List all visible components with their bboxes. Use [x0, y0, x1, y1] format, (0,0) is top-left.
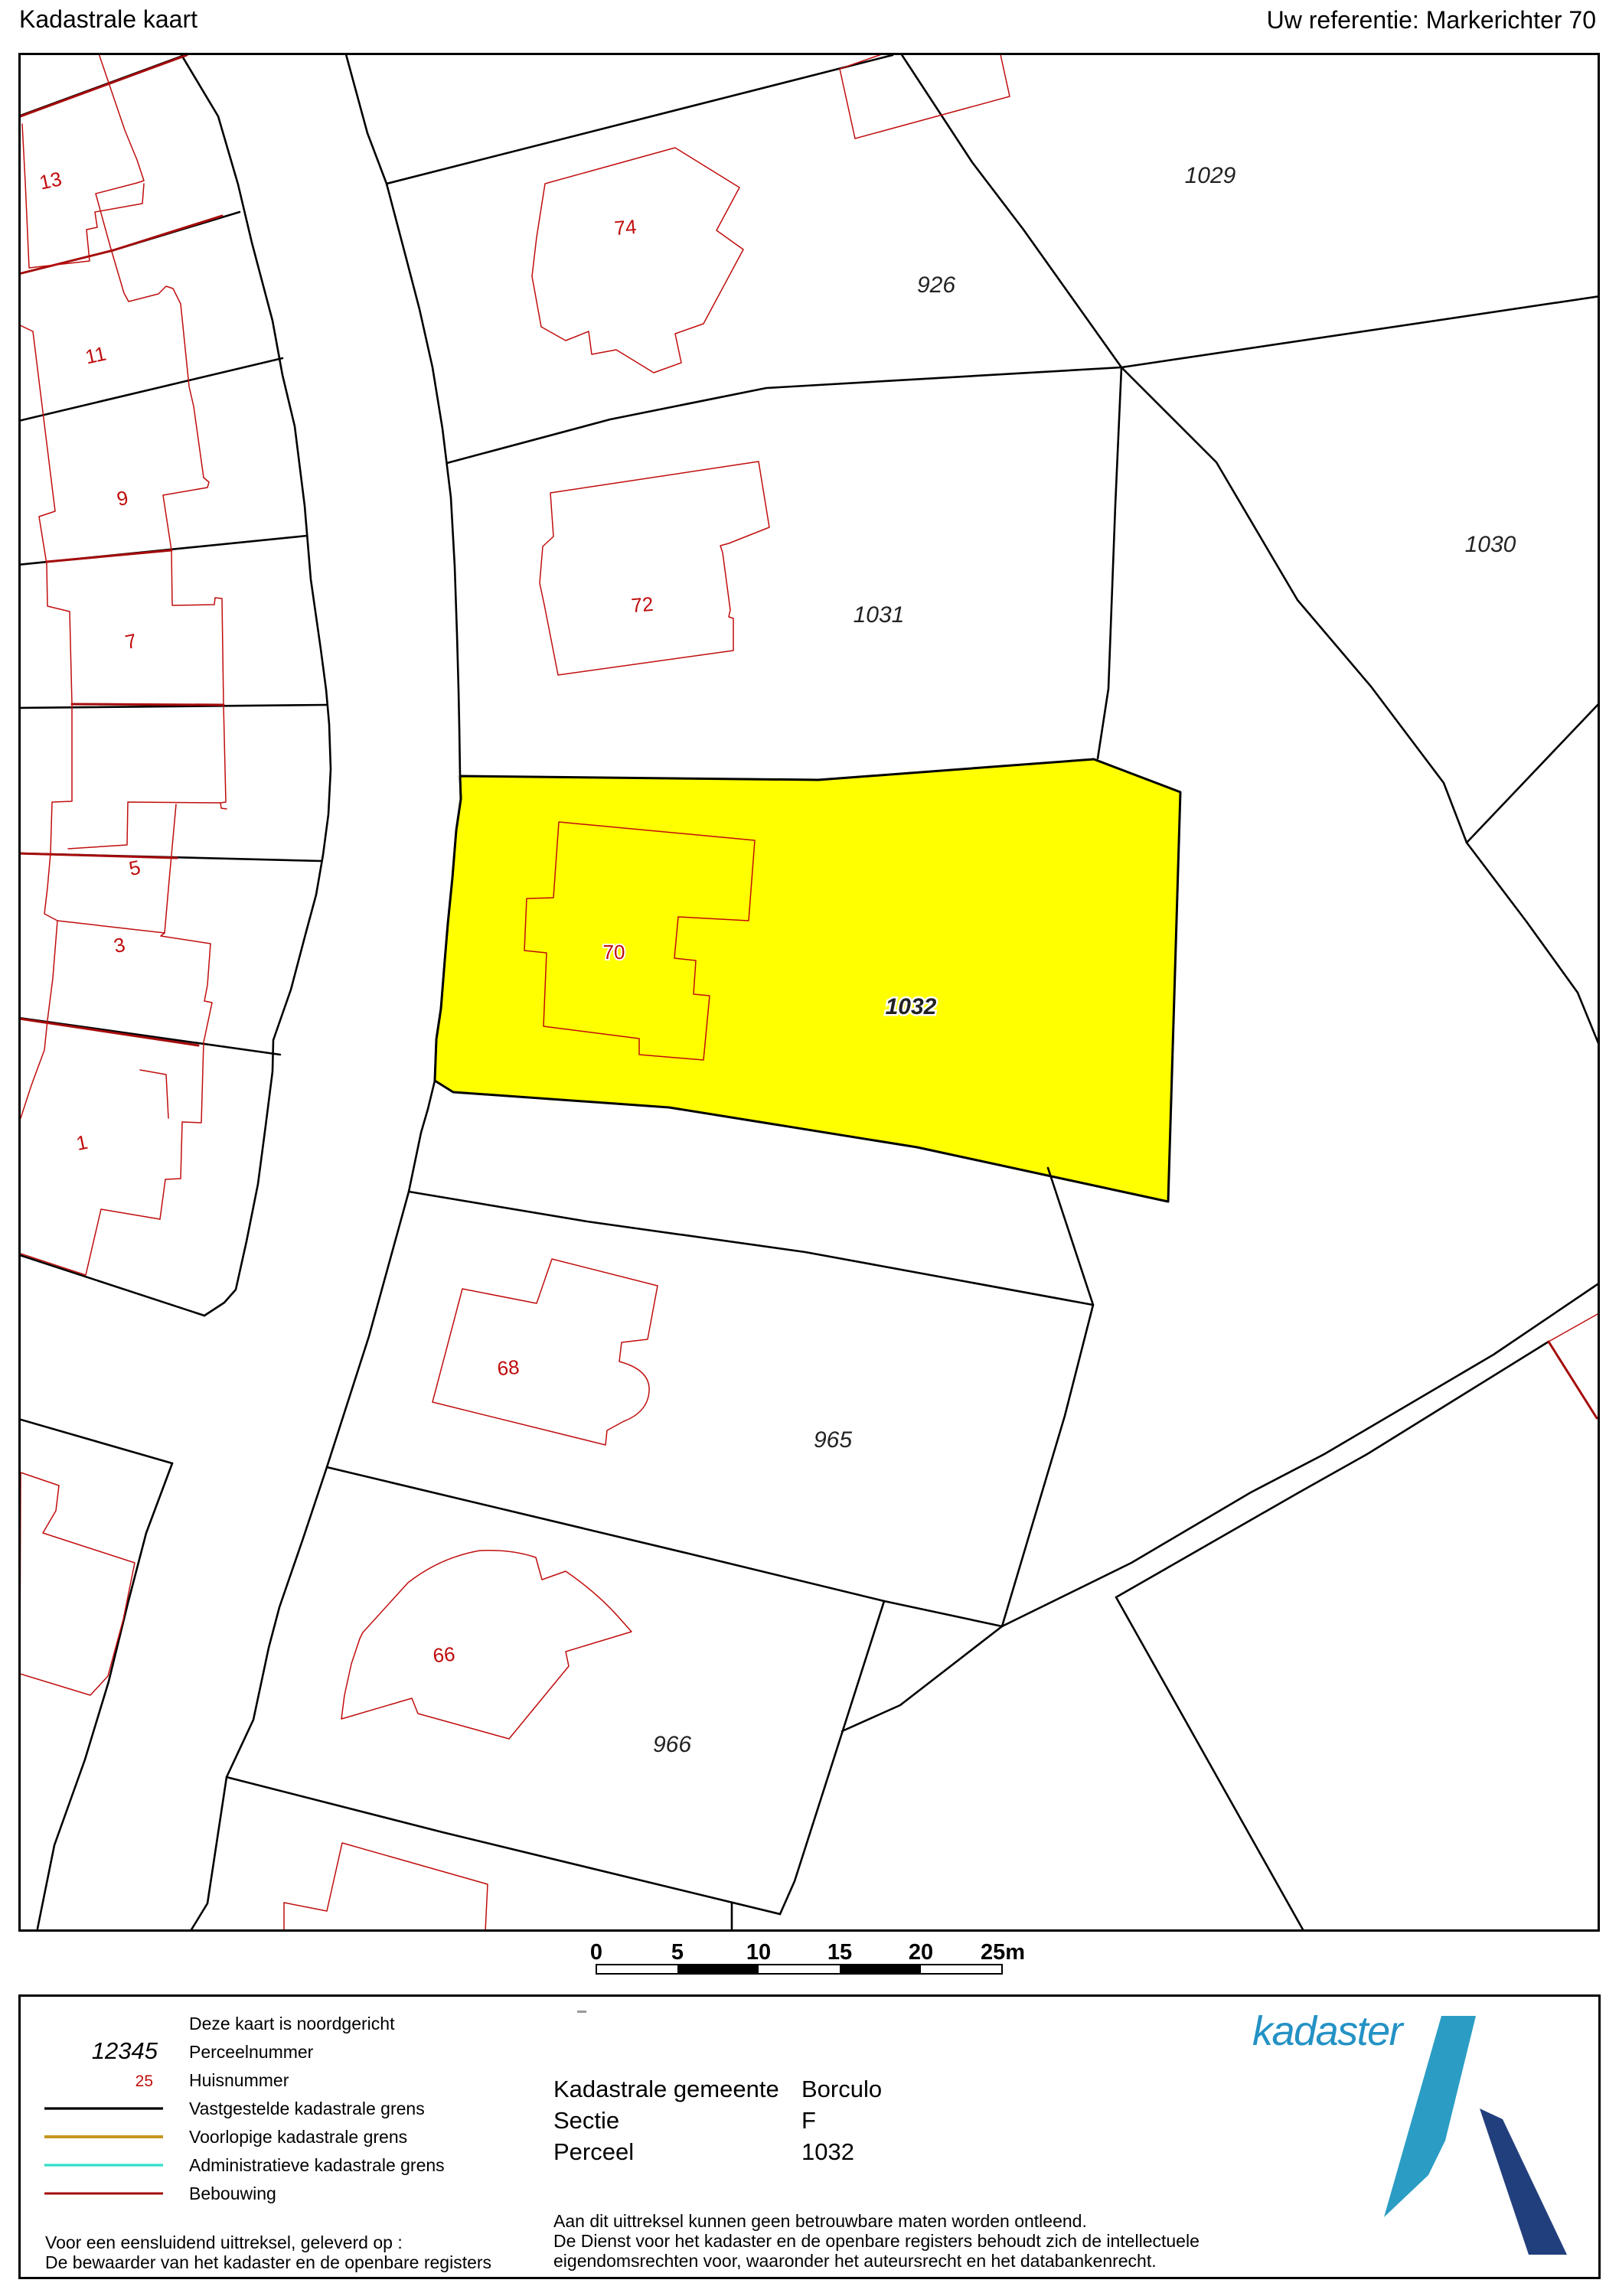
svg-text:Administratieve kadastrale gre: Administratieve kadastrale grens [189, 2155, 445, 2175]
svg-text:Borculo: Borculo [801, 2076, 882, 2102]
svg-text:Bebouwing: Bebouwing [189, 2183, 276, 2203]
svg-text:1032: 1032 [801, 2138, 854, 2165]
svg-text:Voor een eensluidend uittrekse: Voor een eensluidend uittreksel, gelever… [45, 2232, 403, 2252]
svg-text:De Dienst voor het kadaster en: De Dienst voor het kadaster en de openba… [553, 2231, 1200, 2251]
svg-text:1030: 1030 [1465, 532, 1516, 557]
svg-text:kadaster: kadaster [1252, 2008, 1405, 2054]
svg-text:Kadastrale kaart: Kadastrale kaart [19, 5, 197, 33]
svg-text:De bewaarder van het kadaster: De bewaarder van het kadaster en de open… [45, 2252, 491, 2272]
svg-text:F: F [801, 2107, 816, 2134]
svg-text:Deze kaart is noordgericht: Deze kaart is noordgericht [189, 2014, 395, 2033]
svg-text:1031: 1031 [854, 602, 905, 628]
svg-text:66: 66 [432, 1642, 455, 1667]
svg-text:Uw referentie: Markerichter 70: Uw referentie: Markerichter 70 [1267, 6, 1596, 34]
svg-text:Vastgestelde kadastrale grens: Vastgestelde kadastrale grens [189, 2099, 425, 2118]
svg-text:1032: 1032 [886, 994, 937, 1019]
svg-text:Perceel: Perceel [553, 2138, 634, 2165]
svg-text:965: 965 [814, 1427, 852, 1453]
svg-text:Kadastrale gemeente: Kadastrale gemeente [553, 2076, 779, 2102]
svg-text:10: 10 [746, 1940, 771, 1965]
svg-text:1029: 1029 [1185, 163, 1236, 188]
svg-text:68: 68 [496, 1355, 520, 1380]
svg-text:74: 74 [613, 215, 637, 240]
svg-text:13: 13 [38, 167, 64, 194]
svg-text:15: 15 [827, 1940, 852, 1965]
svg-text:25: 25 [135, 2073, 153, 2090]
svg-text:926: 926 [917, 272, 955, 298]
svg-text:70: 70 [603, 941, 625, 964]
svg-text:Aan dit uittreksel kunnen geen: Aan dit uittreksel kunnen geen betrouwba… [553, 2211, 1087, 2231]
svg-text:5: 5 [671, 1940, 684, 1965]
svg-text:Sectie: Sectie [553, 2107, 619, 2134]
svg-text:966: 966 [653, 1732, 691, 1757]
svg-text:72: 72 [630, 592, 654, 617]
svg-text:25m: 25m [981, 1940, 1025, 1965]
svg-text:eigendomsrechten voor, waarond: eigendomsrechten voor, waaronder het aut… [553, 2251, 1157, 2271]
svg-text:Voorlopige kadastrale grens: Voorlopige kadastrale grens [189, 2127, 407, 2147]
svg-text:20: 20 [909, 1940, 933, 1965]
svg-text:0: 0 [590, 1940, 602, 1965]
svg-text:12345: 12345 [92, 2037, 158, 2064]
svg-text:Perceelnummer: Perceelnummer [189, 2042, 314, 2062]
svg-text:Huisnummer: Huisnummer [189, 2070, 289, 2090]
